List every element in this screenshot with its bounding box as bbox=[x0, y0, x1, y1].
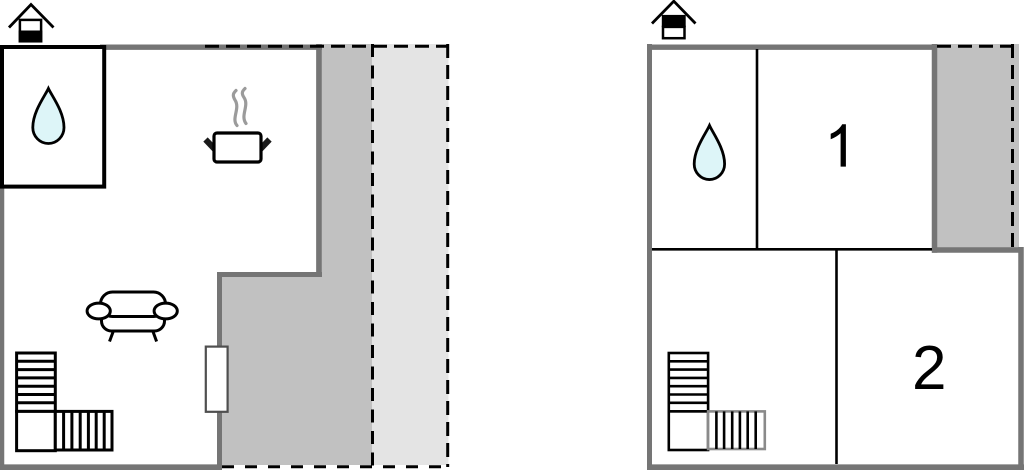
svg-text:2: 2 bbox=[912, 334, 946, 403]
